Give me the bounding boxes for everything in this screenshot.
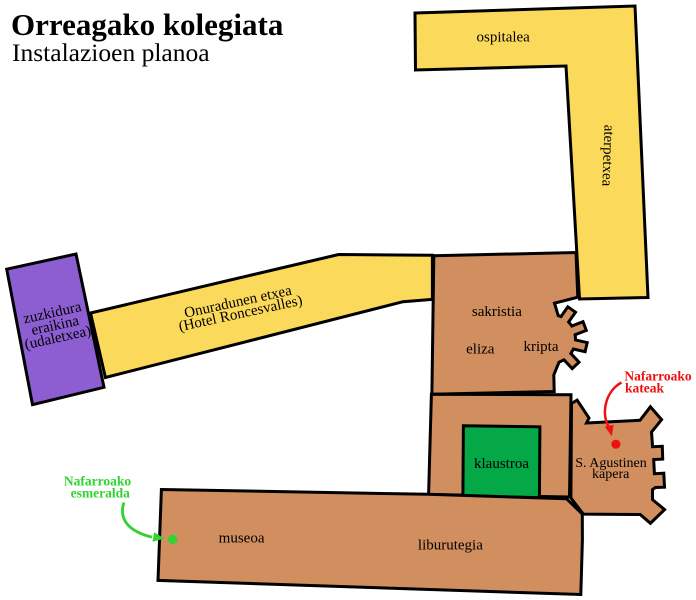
svg-text:kripta: kripta [524,339,559,355]
svg-text:Orreagako kolegiata: Orreagako kolegiata [11,7,284,42]
svg-text:aterpetxea: aterpetxea [598,124,616,186]
svg-text:Instalazioen planoa: Instalazioen planoa [12,38,210,67]
svg-text:eliza: eliza [466,342,495,358]
svg-text:klaustroa: klaustroa [474,456,529,472]
svg-text:kateak: kateak [625,381,664,396]
svg-text:museoa: museoa [219,531,265,547]
svg-text:esmeralda: esmeralda [71,486,130,501]
svg-text:kapera: kapera [592,467,630,482]
svg-text:ospitalea: ospitalea [477,30,531,46]
svg-text:liburutegia: liburutegia [418,538,483,554]
svg-text:sakristia: sakristia [472,304,522,320]
